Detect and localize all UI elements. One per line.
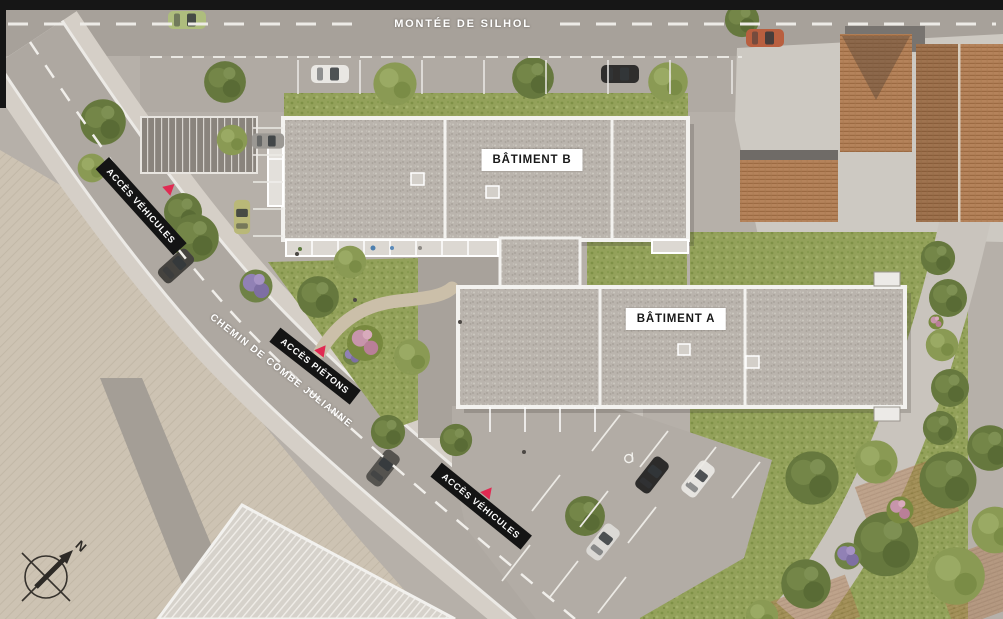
top-frame-bar bbox=[0, 0, 1003, 10]
left-frame-bar bbox=[0, 8, 6, 108]
building-a-label: BÂTIMENT A bbox=[626, 308, 726, 330]
building-b-label: BÂTIMENT B bbox=[482, 149, 583, 171]
rooftop-unit bbox=[874, 407, 900, 421]
street-name-montee-de-silhol: MONTÉE DE SILHOL bbox=[394, 18, 532, 30]
skylight bbox=[746, 356, 759, 368]
building-a bbox=[458, 272, 911, 432]
balcony-strip bbox=[652, 240, 688, 253]
rooftop-unit bbox=[874, 272, 900, 286]
skylight bbox=[411, 173, 424, 185]
skylight bbox=[678, 344, 690, 355]
site-plan: MONTÉE DE SILHOL CHEMIN DE COMBE JULIANN… bbox=[0, 0, 1003, 619]
skylight bbox=[486, 186, 499, 198]
